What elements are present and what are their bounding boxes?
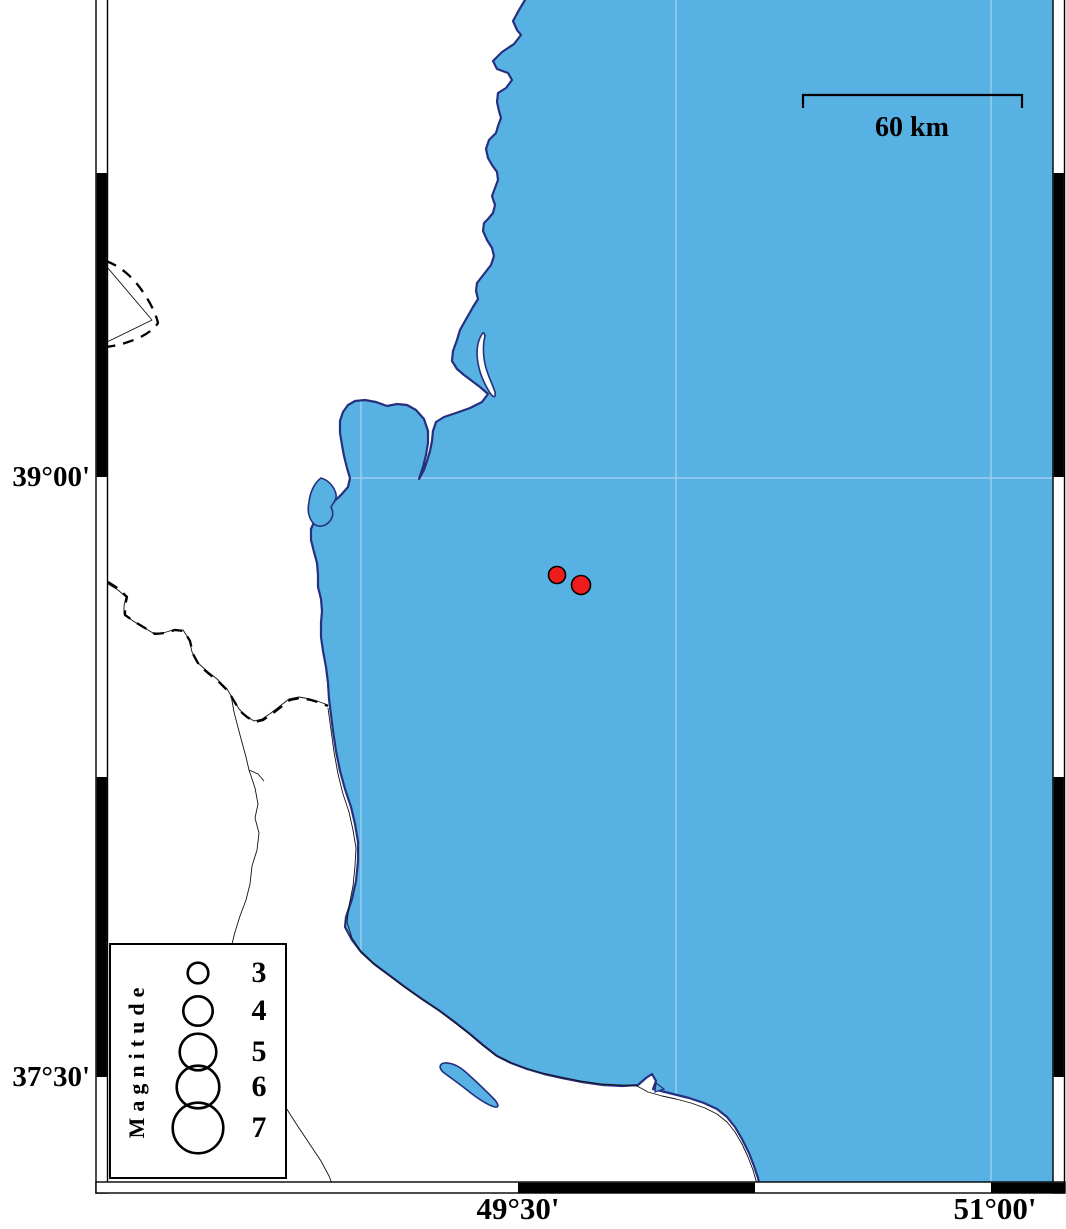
- sea-fill: [311, 0, 1053, 1188]
- scale-bar-label: 60 km: [842, 112, 982, 144]
- small-lagoon: [308, 478, 336, 526]
- legend-label-4: 4: [236, 992, 282, 1030]
- border-northwest: [106, 261, 158, 347]
- legend-label-6: 6: [236, 1068, 282, 1106]
- legend-label-3: 3: [236, 954, 282, 992]
- legend-title: Magnitude: [117, 940, 157, 1180]
- seismicity-map: 39°00' 37°30' 49°30' 51°00' 60 km Magnit…: [0, 0, 1066, 1229]
- earthquake-marker: [572, 576, 591, 595]
- legend-label-5: 5: [236, 1033, 282, 1071]
- lon-label-51-00: 51°00': [920, 1191, 1066, 1227]
- border-astara: [108, 582, 328, 722]
- south-lagoon: [440, 1063, 498, 1107]
- map-canvas: [0, 0, 1066, 1229]
- earthquake-marker: [549, 567, 566, 584]
- lon-label-49-30: 49°30': [443, 1191, 593, 1227]
- lat-label-37-30: 37°30': [0, 1061, 90, 1094]
- lat-label-39-00: 39°00': [0, 461, 90, 494]
- legend-label-7: 7: [236, 1109, 282, 1147]
